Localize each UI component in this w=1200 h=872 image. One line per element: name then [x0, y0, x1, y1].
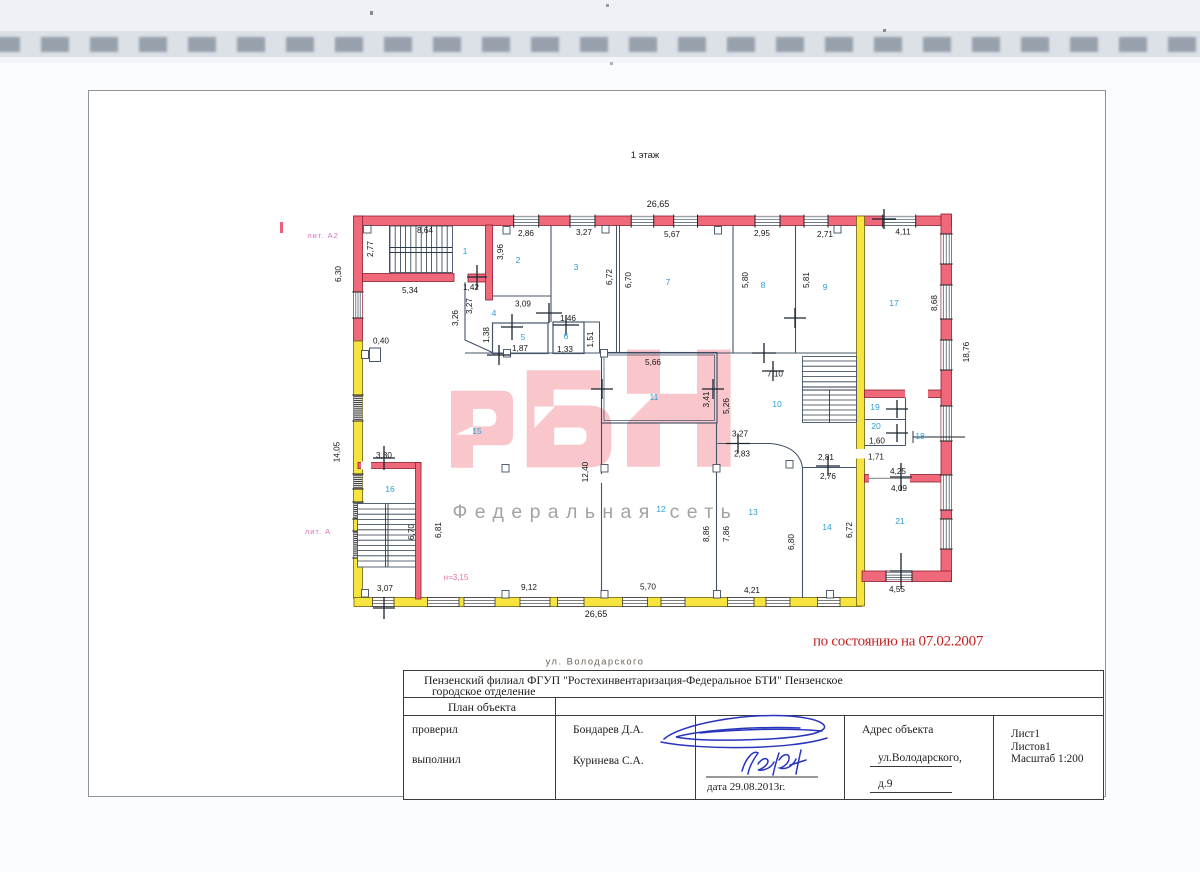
svg-text:6,81: 6,81: [434, 522, 443, 538]
svg-text:2: 2: [516, 255, 521, 265]
svg-text:3,26: 3,26: [451, 310, 460, 326]
svg-text:Федеральная сеть: Федеральная сеть: [453, 501, 739, 523]
svg-text:6,72: 6,72: [845, 522, 854, 538]
svg-text:6,70: 6,70: [624, 272, 633, 288]
svg-text:10: 10: [772, 399, 782, 409]
svg-text:2,71: 2,71: [817, 230, 833, 239]
svg-text:6: 6: [564, 331, 569, 341]
svg-text:6,30: 6,30: [334, 266, 343, 282]
svg-text:2,86: 2,86: [518, 229, 534, 238]
svg-text:3,09: 3,09: [515, 299, 531, 308]
svg-text:4,25: 4,25: [890, 467, 906, 476]
svg-text:21: 21: [895, 516, 905, 526]
svg-text:18: 18: [915, 431, 925, 441]
svg-text:26,65: 26,65: [647, 199, 670, 209]
svg-text:2,95: 2,95: [754, 229, 770, 238]
svg-text:7: 7: [666, 277, 671, 287]
svg-text:2,76: 2,76: [820, 472, 836, 481]
svg-text:3: 3: [574, 262, 579, 272]
svg-text:5: 5: [521, 332, 526, 342]
svg-text:11: 11: [650, 392, 659, 402]
svg-text:12: 12: [656, 504, 666, 514]
svg-text:3,27: 3,27: [732, 429, 748, 438]
svg-text:5,67: 5,67: [664, 230, 680, 239]
svg-text:1,38: 1,38: [482, 327, 491, 343]
svg-text:8,64: 8,64: [417, 226, 433, 235]
svg-text:по состоянию на 07.02.2007: по состоянию на 07.02.2007: [813, 634, 984, 650]
svg-text:3,30: 3,30: [376, 451, 392, 460]
svg-text:1,51: 1,51: [586, 331, 595, 347]
svg-text:8,86: 8,86: [702, 526, 711, 542]
svg-text:5,70: 5,70: [640, 582, 656, 591]
svg-text:лит. А2: лит. А2: [307, 231, 339, 240]
svg-text:7,10: 7,10: [767, 369, 783, 378]
svg-text:4: 4: [492, 308, 497, 318]
svg-text:5,34: 5,34: [402, 286, 418, 295]
svg-text:1: 1: [463, 246, 468, 256]
svg-text:17: 17: [889, 298, 899, 308]
svg-text:1,71: 1,71: [868, 452, 884, 461]
svg-text:5,81: 5,81: [802, 272, 811, 288]
svg-text:18,76: 18,76: [962, 341, 971, 362]
svg-text:4,11: 4,11: [895, 227, 911, 236]
svg-text:5,66: 5,66: [645, 358, 661, 367]
svg-text:3,96: 3,96: [496, 244, 505, 260]
svg-text:0,40: 0,40: [373, 337, 389, 346]
svg-text:13: 13: [748, 507, 758, 517]
svg-text:8,68: 8,68: [930, 295, 939, 311]
svg-text:6,70: 6,70: [407, 524, 416, 540]
svg-text:6,80: 6,80: [787, 534, 796, 550]
svg-text:1 этаж: 1 этаж: [631, 150, 660, 161]
svg-text:26,65: 26,65: [585, 609, 608, 619]
svg-text:3,27: 3,27: [576, 228, 592, 237]
svg-text:7,86: 7,86: [722, 526, 731, 542]
svg-text:4,09: 4,09: [891, 484, 907, 493]
svg-text:19: 19: [870, 402, 880, 412]
svg-text:16: 16: [385, 484, 395, 494]
svg-text:ул. Володарского: ул. Володарского: [546, 657, 645, 667]
svg-text:2,81: 2,81: [818, 453, 834, 462]
svg-text:4,55: 4,55: [889, 585, 905, 594]
svg-text:2,83: 2,83: [734, 449, 750, 458]
svg-text:лит. А: лит. А: [305, 527, 331, 536]
svg-text:1,60: 1,60: [869, 436, 885, 445]
svg-text:9: 9: [823, 282, 828, 292]
svg-text:4,21: 4,21: [744, 586, 760, 595]
svg-text:1,46: 1,46: [560, 314, 576, 323]
svg-text:3,27: 3,27: [465, 298, 474, 314]
svg-text:6,72: 6,72: [605, 269, 614, 285]
svg-text:н=3,15: н=3,15: [444, 573, 469, 582]
svg-text:14,05: 14,05: [332, 441, 341, 462]
svg-text:8: 8: [761, 280, 766, 290]
svg-text:3,41: 3,41: [702, 391, 711, 407]
svg-text:3,07: 3,07: [377, 584, 393, 593]
svg-text:5,26: 5,26: [722, 398, 731, 414]
svg-text:5,80: 5,80: [741, 272, 750, 288]
svg-text:15: 15: [472, 426, 482, 436]
svg-text:1,33: 1,33: [557, 345, 573, 354]
svg-text:1,42: 1,42: [463, 283, 479, 292]
svg-text:9,12: 9,12: [521, 583, 537, 592]
svg-text:2,77: 2,77: [366, 241, 375, 257]
svg-text:12,40: 12,40: [581, 461, 590, 482]
svg-text:1,87: 1,87: [512, 344, 528, 353]
svg-text:20: 20: [871, 421, 881, 431]
svg-text:14: 14: [822, 522, 832, 532]
